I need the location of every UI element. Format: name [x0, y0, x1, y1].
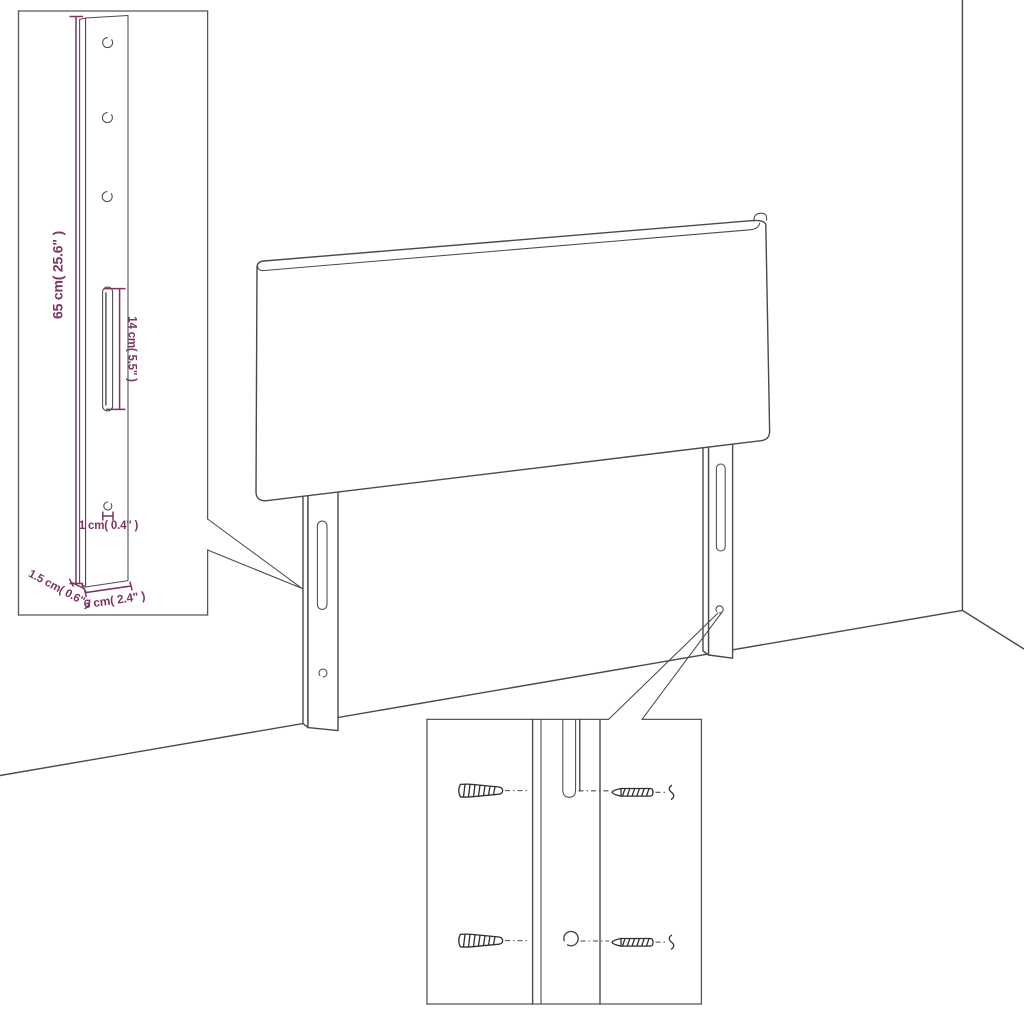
callout-line-upper [208, 519, 302, 588]
wall-plug-icon [459, 934, 503, 947]
leader-lines [505, 791, 609, 941]
wall-plug-icon [459, 784, 503, 797]
hw-hole [564, 931, 578, 945]
screw-icon [612, 935, 674, 949]
headboard-left-leg [303, 489, 338, 731]
inset-leg-drawing [80, 16, 128, 588]
callout-line-right [642, 613, 722, 720]
callout-line-left [609, 613, 718, 719]
inset-leg-side-face [80, 18, 86, 587]
left-leg-side-face [303, 492, 308, 728]
floor-corner-edge-right [962, 610, 1024, 649]
callout-line-lower [208, 550, 302, 588]
hardware-inset [427, 719, 701, 1004]
dim-height-label: 65 cm( 25.6" ) [50, 231, 66, 319]
dim-hole-label: 1 cm( 0.4" ) [79, 520, 139, 532]
panel-outline [256, 220, 770, 500]
floor-wall-edge-left [0, 610, 962, 775]
left-callout-wedge [208, 519, 302, 588]
leg-dimension-inset: 65 cm( 25.6" ) 14 cm( 5.5" ) 1 cm( 0.4" … [19, 11, 208, 615]
dim-slot-label: 14 cm( 5.5" ) [126, 316, 138, 382]
headboard-panel [256, 213, 770, 501]
screw-icon [612, 785, 674, 799]
hw-slot [563, 719, 576, 797]
headboard-assembly-diagram: 65 cm( 25.6" ) 14 cm( 5.5" ) 1 cm( 0.4" … [0, 0, 1024, 1024]
hw-leg-closeup [533, 719, 600, 1004]
diagram-canvas: 65 cm( 25.6" ) 14 cm( 5.5" ) 1 cm( 0.4" … [0, 0, 1024, 1024]
hardware-inset-frame [427, 719, 701, 1004]
inset-leg-front-face [86, 16, 128, 588]
dim-width-tick-right [130, 582, 132, 591]
headboard-right-leg [703, 439, 733, 658]
